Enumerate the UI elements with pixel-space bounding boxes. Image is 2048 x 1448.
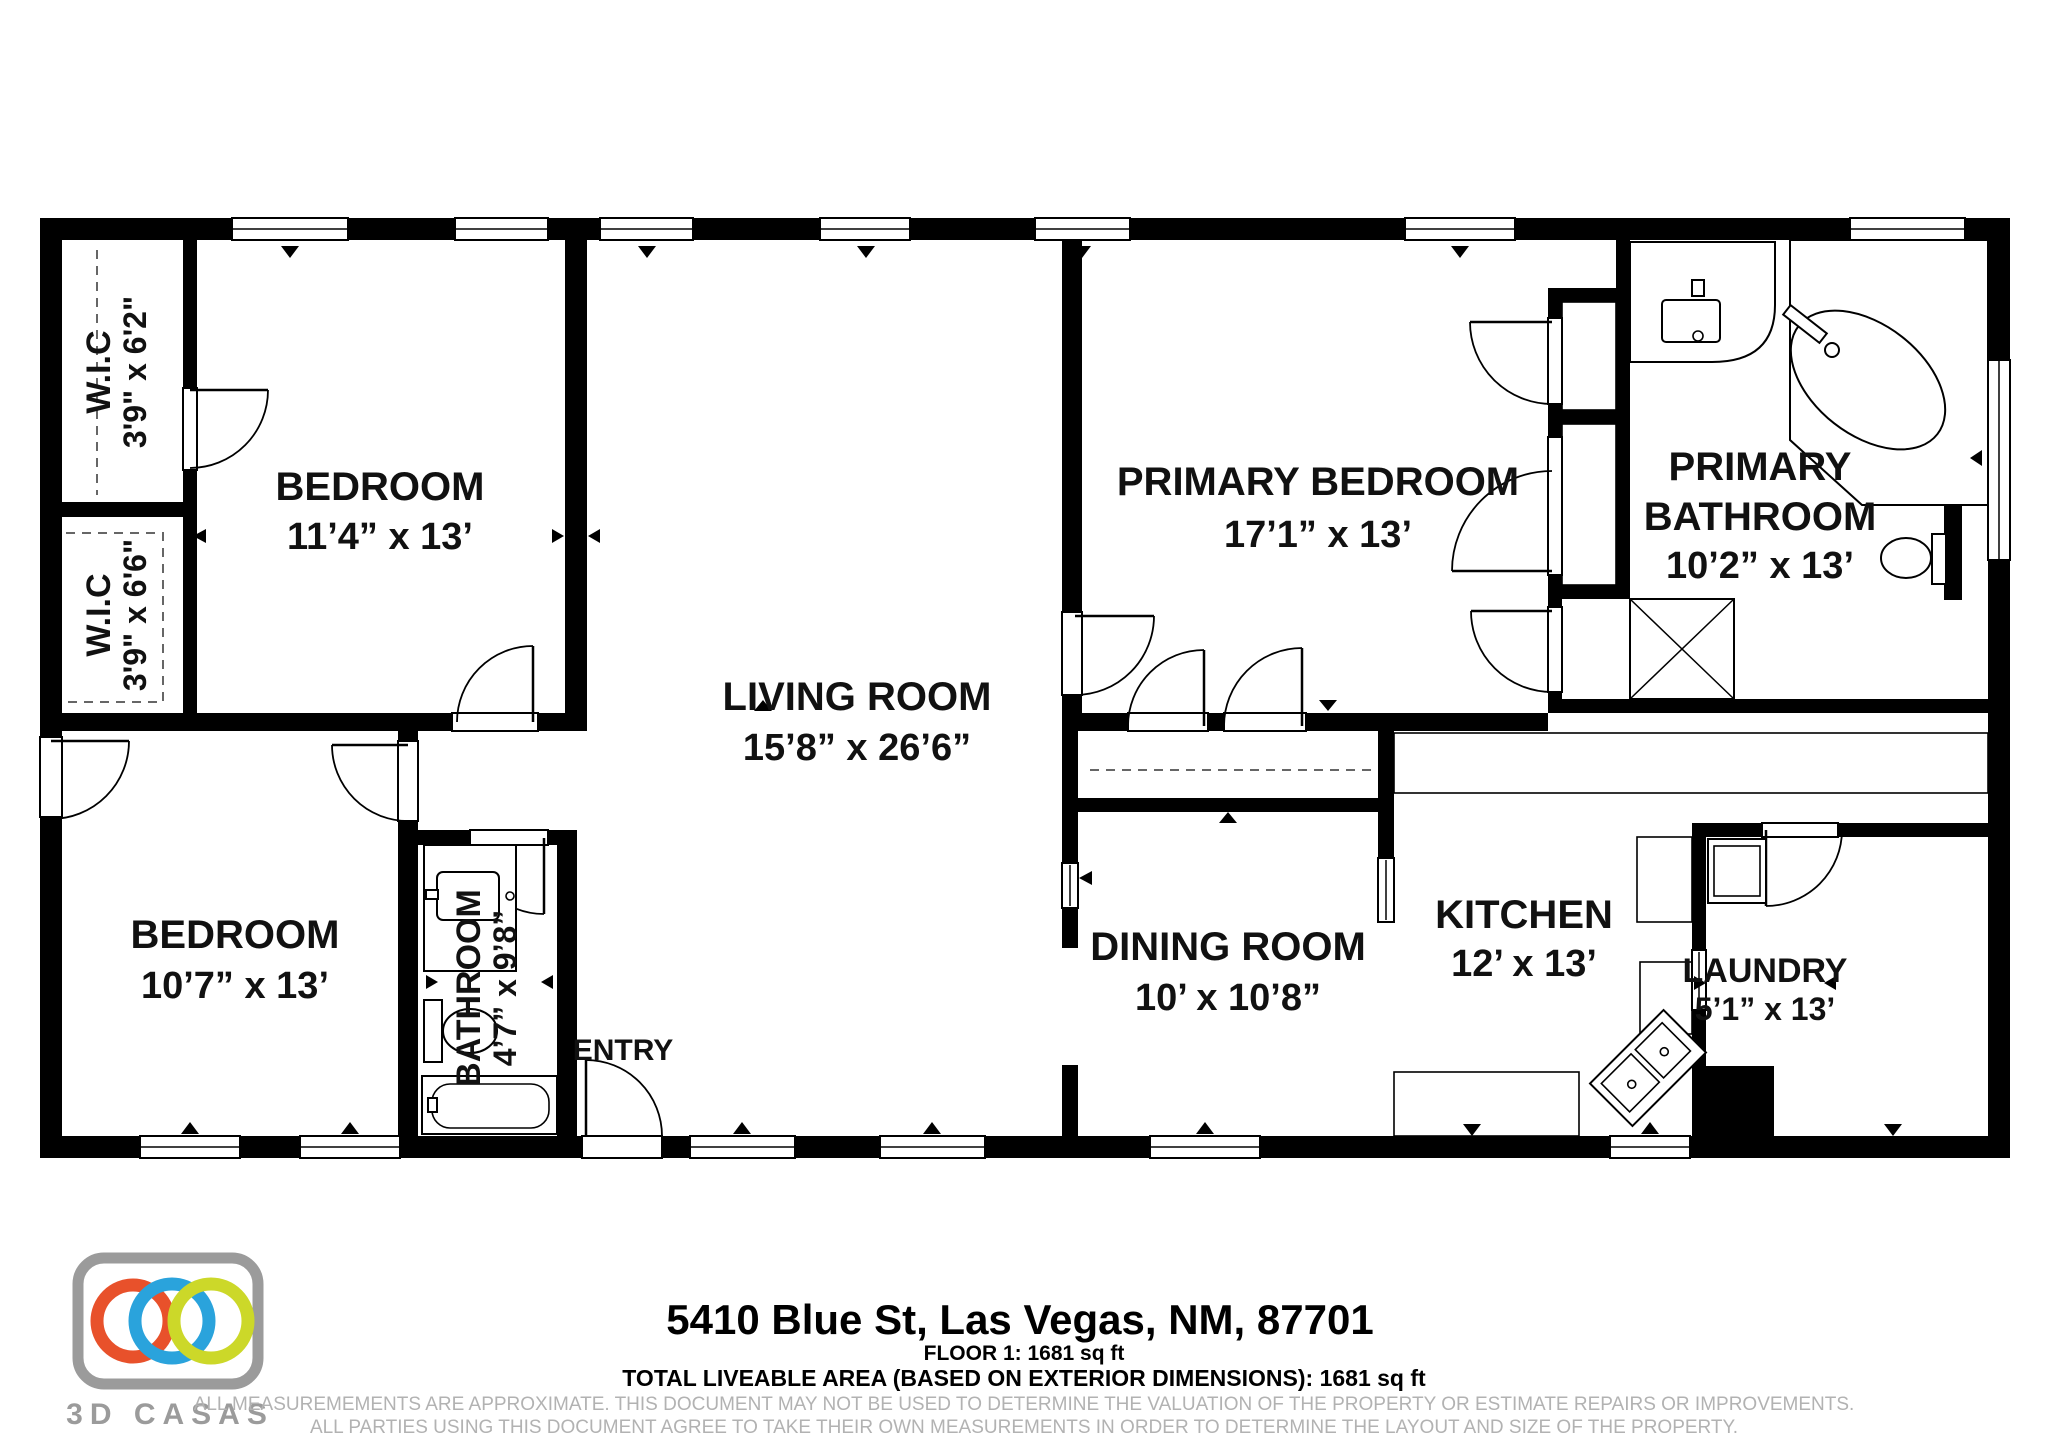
room-name: LIVING ROOM	[723, 675, 992, 719]
room-label-bathroom: BATHROOM 4’7” x 9’8”	[450, 889, 523, 1087]
room-name: BEDROOM	[131, 913, 340, 957]
direction-arrow	[733, 1122, 751, 1134]
kitchen-counter	[1394, 1072, 1579, 1136]
door-sill	[582, 1136, 662, 1158]
wall-segment	[1062, 240, 1082, 612]
closet-door	[1470, 322, 1552, 404]
direction-arrow	[541, 975, 553, 989]
cased-opening	[1378, 858, 1394, 922]
wall-segment	[538, 713, 587, 731]
door-sill	[398, 741, 418, 821]
window	[1610, 1136, 1690, 1158]
washer-icon	[1708, 839, 1766, 903]
direction-arrow	[426, 975, 438, 989]
window	[232, 218, 348, 240]
room-name: W.I.C	[80, 573, 118, 656]
room-label-dining: DINING ROOM 10’ x 10’8”	[1090, 925, 1366, 1019]
room-name: BEDROOM	[276, 465, 485, 509]
window	[140, 1136, 240, 1158]
wall-segment	[1062, 695, 1082, 713]
window	[600, 218, 693, 240]
direction-arrow	[923, 1122, 941, 1134]
wall-segment	[40, 502, 197, 517]
room-name: KITCHEN	[1435, 893, 1613, 937]
direction-arrow	[1219, 812, 1237, 823]
wall-segment	[1692, 837, 1706, 950]
door-sill	[470, 830, 548, 845]
door-sill	[1548, 607, 1562, 692]
direction-arrow	[1451, 246, 1469, 258]
room-label-entry: ENTRY	[573, 1034, 674, 1067]
room-dims: 3'9" x 6'6"	[117, 539, 153, 691]
wall-segment	[1838, 823, 1988, 837]
direction-arrow	[1641, 1122, 1659, 1134]
tub-faucet-handle-icon	[1825, 343, 1839, 357]
kitchen-sink-icon	[1590, 1010, 1706, 1126]
room-name: BATHROOM	[1644, 495, 1877, 539]
utility-block	[1700, 1066, 1774, 1136]
room-dims: 12’ x 13’	[1451, 943, 1597, 985]
window	[690, 1136, 795, 1158]
wall-segment	[1062, 812, 1078, 863]
direction-arrow	[638, 246, 656, 258]
closet-interior	[1562, 424, 1616, 585]
room-label-laundry: LAUNDRY 5’1” x 13’	[1683, 952, 1848, 1027]
closet-interior	[1562, 302, 1616, 410]
door	[332, 745, 408, 821]
direction-arrow	[341, 1122, 359, 1134]
wall-segment	[1062, 798, 1394, 812]
wall-segment	[183, 240, 197, 388]
direction-arrow	[281, 246, 299, 258]
room-name: PRIMARY	[1669, 445, 1852, 489]
entry-door	[586, 1060, 662, 1136]
room-dims: 5’1” x 13’	[1695, 991, 1836, 1027]
wall-segment	[183, 517, 197, 713]
toilet-tank-icon	[1932, 534, 1946, 584]
room-dims: 11’4” x 13’	[287, 516, 473, 558]
wall-segment	[183, 470, 197, 502]
window	[880, 1136, 985, 1158]
door	[1766, 830, 1842, 906]
room-label-bedroom-top: BEDROOM 11’4” x 13’	[276, 465, 485, 558]
window	[455, 218, 548, 240]
wall-segment	[40, 713, 452, 731]
door	[1471, 611, 1552, 692]
room-name: W.I.C	[80, 330, 118, 413]
room-label-primary-bathroom: PRIMARY BATHROOM 10’2” x 13’	[1644, 445, 1877, 587]
room-name: DINING ROOM	[1090, 925, 1366, 969]
wall-segment	[398, 731, 418, 741]
property-address: 5410 Blue St, Las Vegas, NM, 87701	[666, 1296, 1373, 1343]
wall-segment	[1062, 1065, 1078, 1136]
floor-area-line: FLOOR 1: 1681 sq ft	[924, 1342, 1125, 1365]
wall-segment	[1306, 713, 1548, 731]
toilet-bowl-icon	[1881, 538, 1931, 578]
room-name: PRIMARY BEDROOM	[1117, 460, 1519, 504]
room-dims: 10’7” x 13’	[141, 965, 329, 1007]
door-sill	[1548, 437, 1562, 575]
wall-segment	[1062, 908, 1078, 948]
door-sill	[1062, 612, 1082, 695]
wall-segment	[418, 830, 470, 845]
room-label-wic-mid: W.I.C 3'9" x 6'6"	[80, 539, 153, 691]
window	[1988, 360, 2010, 560]
room-name: BATHROOM	[450, 889, 488, 1087]
direction-arrow	[1196, 1122, 1214, 1134]
disclaimer-line-2: ALL PARTIES USING THIS DOCUMENT AGREE TO…	[310, 1417, 1738, 1438]
footer: 3D CASAS 5410 Blue St, Las Vegas, NM, 87…	[66, 1258, 1854, 1438]
sink-icon	[1662, 300, 1720, 342]
cased-opening	[1062, 863, 1078, 908]
window	[1150, 1136, 1260, 1158]
room-name: LAUNDRY	[1683, 952, 1848, 990]
faucet-icon	[1692, 280, 1704, 296]
window	[1035, 218, 1130, 240]
window	[1405, 218, 1515, 240]
direction-arrow	[588, 529, 600, 543]
faucet-icon	[426, 890, 438, 899]
direction-arrow	[1319, 700, 1337, 711]
disclaimer-line-1: ALL MEASUREMEMENTS ARE APPROXIMATE. THIS…	[194, 1394, 1855, 1415]
direction-arrow	[181, 1122, 199, 1134]
window	[1850, 218, 1965, 240]
closet-rod-lines	[66, 250, 1372, 770]
tub-faucet-icon	[428, 1098, 437, 1112]
room-label-kitchen: KITCHEN 12’ x 13’	[1435, 893, 1613, 985]
door-sill	[1128, 713, 1208, 731]
door-sill	[40, 737, 62, 817]
door-sill	[1548, 318, 1562, 404]
kitchen-counter	[1394, 733, 1988, 793]
door-sill	[1762, 823, 1838, 837]
wall-segment	[565, 240, 587, 713]
door-sill	[452, 713, 538, 731]
room-dims: 3'9" x 6'2"	[117, 296, 153, 448]
direction-arrow	[1463, 1124, 1481, 1136]
room-dims: 10’ x 10’8”	[1135, 977, 1321, 1019]
room-dims: 15’8” x 26’6”	[743, 727, 971, 769]
door-sill	[1224, 713, 1306, 731]
room-label-bedroom-bottom: BEDROOM 10’7” x 13’	[131, 913, 340, 1007]
shower-icon	[1630, 599, 1734, 699]
direction-arrow	[857, 246, 875, 258]
toilet-tank-icon	[424, 1000, 442, 1062]
room-dims: 4’7” x 9’8”	[487, 910, 523, 1067]
window	[820, 218, 910, 240]
total-area-line: TOTAL LIVEABLE AREA (BASED ON EXTERIOR D…	[622, 1365, 1426, 1391]
room-dims: 17’1” x 13’	[1224, 514, 1412, 556]
kitchen-counter	[1637, 837, 1692, 922]
wall-segment	[1616, 302, 1630, 599]
direction-arrow	[1884, 1124, 1902, 1136]
room-dims: 10’2” x 13’	[1666, 545, 1854, 587]
room-label-wic-top: W.I.C 3'9" x 6'2"	[80, 296, 153, 448]
wall-segment	[1208, 713, 1224, 731]
door	[457, 646, 533, 722]
wall-segment	[398, 821, 418, 1136]
floor-plan-canvas: W.I.C 3'9" x 6'2" W.I.C 3'9" x 6'6" BEDR…	[0, 0, 2048, 1448]
wall-segment	[1378, 812, 1394, 858]
wall-segment	[1692, 823, 1762, 837]
wall-segment	[1062, 713, 1128, 731]
floor-plan-page: W.I.C 3'9" x 6'2" W.I.C 3'9" x 6'6" BEDR…	[0, 0, 2048, 1448]
room-label-living: LIVING ROOM 15’8” x 26’6”	[723, 675, 992, 769]
wall-segment	[557, 830, 577, 1136]
wall-segment	[1548, 699, 2010, 713]
door	[190, 390, 268, 468]
window	[300, 1136, 400, 1158]
wall-segment	[40, 218, 62, 1158]
direction-arrow	[1079, 871, 1092, 885]
door-sill	[183, 388, 197, 470]
wall-segment	[1616, 240, 1630, 302]
room-label-primary-bedroom: PRIMARY BEDROOM 17’1” x 13’	[1117, 460, 1519, 556]
direction-arrow	[552, 529, 564, 543]
